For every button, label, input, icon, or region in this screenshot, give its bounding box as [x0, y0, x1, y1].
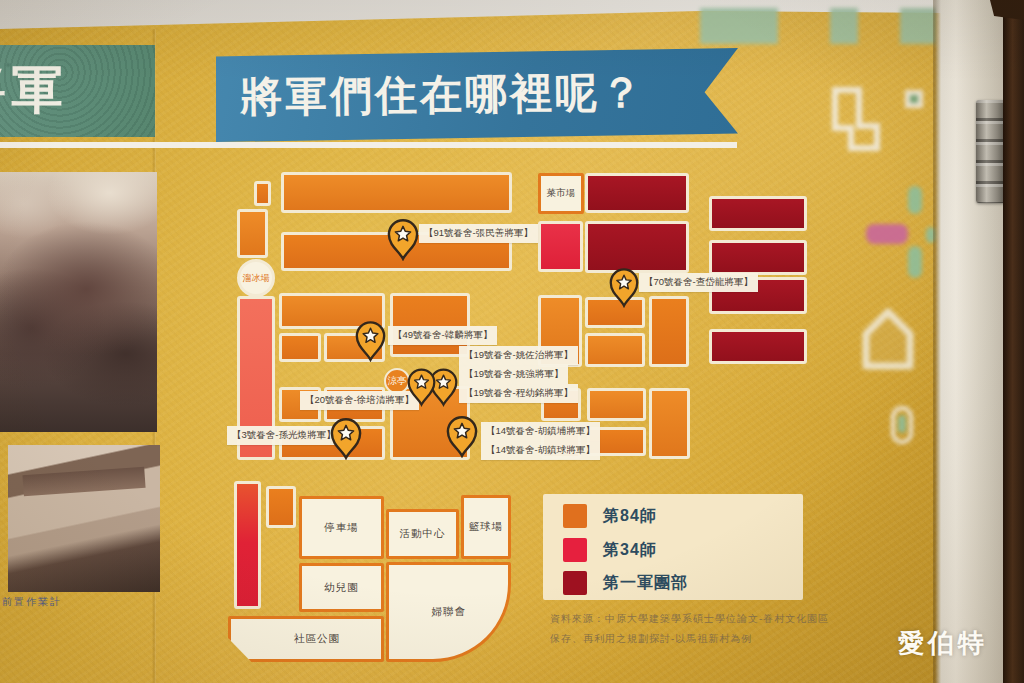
general-tag-91: 【91號眷舍-張民善將軍】	[419, 224, 538, 243]
cross-decor-pill	[908, 246, 922, 278]
general-tag-3: 【3號眷舍-孫光煥將軍】	[227, 426, 340, 445]
house-outline-icon	[862, 308, 914, 370]
wood-trim	[1003, 0, 1024, 683]
legend-label: 第一軍團部	[603, 573, 688, 594]
star-pin-icon	[609, 268, 639, 308]
exhibition-photo: 將軍 前置作業計 將軍們住在哪裡呢？	[0, 0, 1024, 683]
legend-swatch-34	[563, 538, 587, 562]
door-hinge	[976, 100, 1006, 203]
general-tag-14b: 【14號眷舍-胡鎮球將軍】	[481, 441, 600, 460]
star-pin-icon	[387, 219, 419, 261]
legend-label: 第84師	[603, 506, 657, 527]
legend-swatch-84	[563, 504, 587, 528]
general-tag-14a: 【14號眷舍-胡鎮埔將軍】	[481, 422, 600, 441]
legend-swatch-army	[563, 571, 587, 595]
tetromino-outline-icon	[831, 86, 881, 152]
general-tag-19a: 【19號眷舍-姚佐治將軍】	[459, 346, 578, 365]
green-band	[900, 8, 936, 44]
watermark: 愛伯特	[898, 626, 988, 661]
star-pin-icon	[446, 416, 478, 458]
legend-row: 第34師	[563, 538, 657, 562]
square-decor-inner	[910, 95, 918, 103]
general-tag-20: 【20號眷舍-徐培清將軍】	[300, 391, 419, 410]
general-tag-19c: 【19號眷舍-程幼銘將軍】	[459, 384, 578, 403]
legend-row: 第84師	[563, 504, 657, 528]
green-band	[830, 8, 858, 44]
cross-decor-pill	[908, 186, 922, 214]
legend-box: 第84師 第34師 第一軍團部	[543, 494, 803, 600]
star-pin-icon	[330, 418, 362, 460]
source-note: 資料來源：中原大學建築學系碩士學位論文-眷村文化園區 保存、再利用之規劃探討-以…	[550, 609, 829, 649]
general-tag-49: 【49號眷舍-韓麟將軍】	[388, 326, 497, 345]
general-tag-70: 【70號眷舍-查岱龍將軍】	[639, 273, 758, 292]
source-line1: 資料來源：中原大學建築學系碩士學位論文-眷村文化園區	[550, 609, 829, 629]
pavilion-label: 涼亭	[388, 375, 407, 388]
general-tag-19b: 【19號眷舍-姚強將軍】	[459, 365, 568, 384]
legend-label: 第34師	[603, 540, 657, 561]
capsule-decor	[891, 406, 913, 444]
green-band	[700, 8, 778, 44]
source-line2: 保存、再利用之規劃探討-以馬祖新村為例	[550, 629, 829, 649]
capsule-decor-inner	[898, 415, 906, 433]
cross-decor-pill	[866, 224, 908, 244]
legend-row: 第一軍團部	[563, 571, 688, 595]
wall-decorations	[0, 0, 1024, 683]
star-pin-icon	[407, 368, 436, 407]
star-pin-icon	[355, 321, 386, 362]
